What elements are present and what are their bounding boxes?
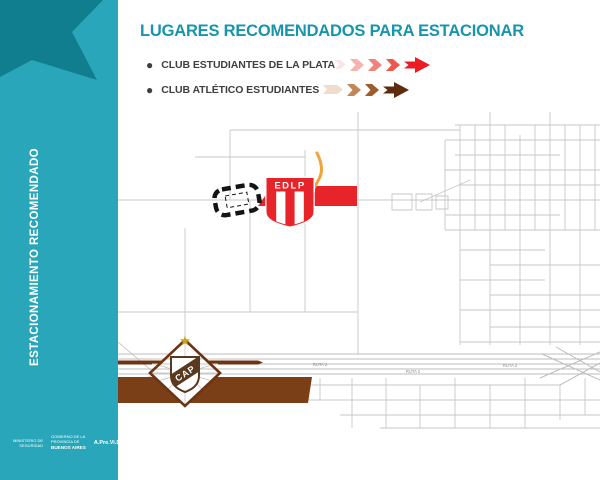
legend-label: CLUB ESTUDIANTES DE LA PLATA [161, 59, 335, 71]
big-arrow-icon [383, 82, 409, 98]
legend-arrows-estudiantes [335, 57, 430, 73]
legend-arrows-atletico [323, 82, 409, 98]
arrow-icon [368, 59, 382, 71]
edlp-badge-text: EDLP [274, 181, 305, 192]
arrow-icon [323, 85, 343, 94]
sidebar-footer: MINISTERIO DE SEGURIDAD GOBIERNO DE LA P… [13, 430, 115, 456]
ministry-line2: SEGURIDAD [13, 443, 43, 448]
arrow-icon [386, 59, 400, 71]
corner-star-icon [0, 0, 120, 90]
vertical-label-text: ESTACIONAMIENTO RECOMENDADO [29, 148, 41, 366]
government-line3: BUENOS AIRES [51, 445, 86, 451]
arrow-icon [347, 84, 361, 96]
legend: ● CLUB ESTUDIANTES DE LA PLATA ● CLUB AT… [146, 52, 576, 102]
legend-label: CLUB ATLÉTICO ESTUDIANTES [161, 84, 335, 96]
edlp-badge: EDLP [265, 177, 315, 230]
arrow-icon [365, 84, 379, 96]
bullet-icon: ● [146, 83, 153, 97]
page-title: LUGARES RECOMENDADOS PARA ESTACIONAR [140, 22, 580, 41]
arrow-icon [350, 59, 364, 71]
corner-star-shape [0, 0, 103, 80]
legend-row-atletico: ● CLUB ATLÉTICO ESTUDIANTES [146, 77, 576, 102]
big-arrow-icon [404, 57, 430, 73]
poster-content: EDLP CAP RUTA [118, 0, 600, 480]
sidebar: ESTACIONAMIENTO RECOMENDADO MINISTERIO D… [0, 0, 118, 480]
ministry-logo-text: MINISTERIO DE SEGURIDAD [13, 438, 43, 448]
road-label-3: RUTA 2 [503, 363, 518, 368]
atletico-parking-zone [118, 377, 312, 403]
government-logo-text: GOBIERNO DE LA PROVINCIA DE BUENOS AIRES [51, 435, 86, 450]
arrow-icon [335, 60, 346, 69]
sidebar-vertical-label: ESTACIONAMIENTO RECOMENDADO [25, 172, 45, 372]
bullet-icon: ● [146, 58, 153, 72]
road-label-1: RUTA 2 [313, 362, 328, 367]
road-label-2: RUTA 2 [406, 369, 421, 374]
legend-row-estudiantes: ● CLUB ESTUDIANTES DE LA PLATA [146, 52, 576, 77]
